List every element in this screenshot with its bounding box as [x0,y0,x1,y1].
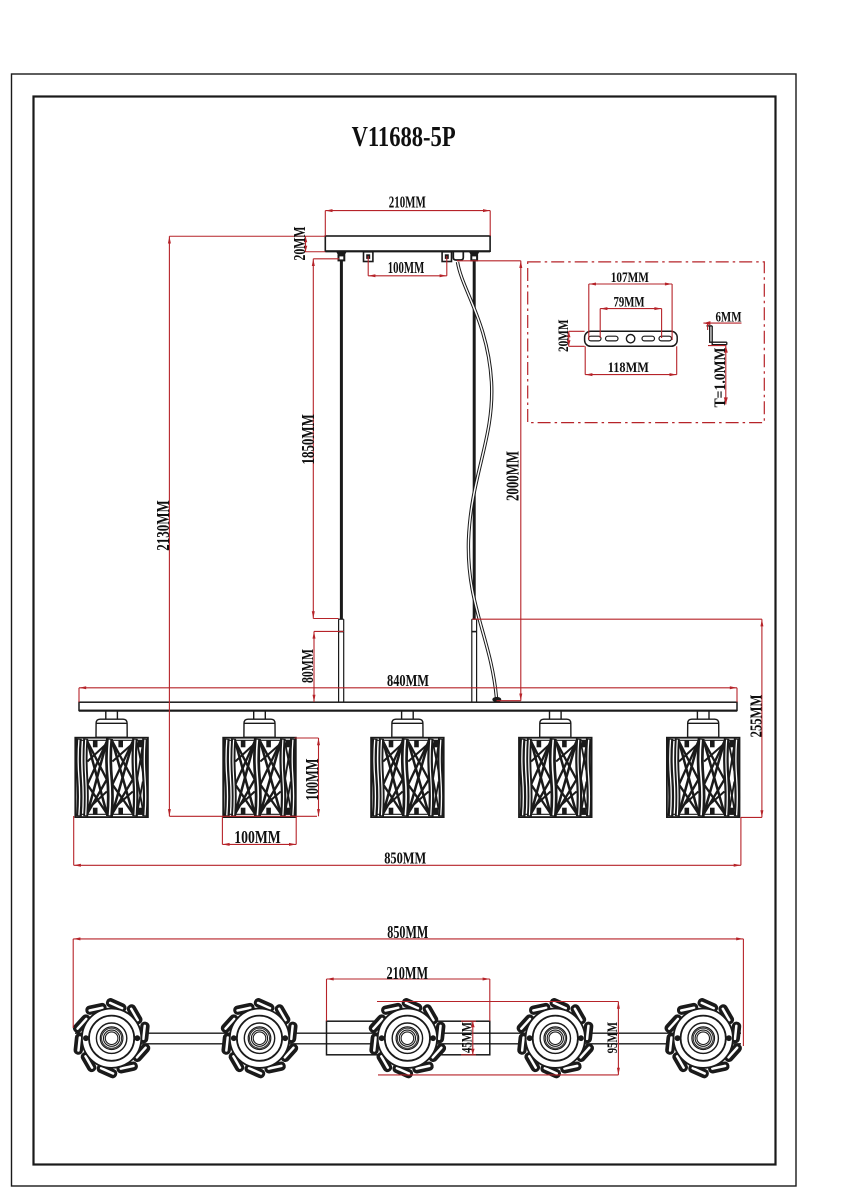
svg-text:100MM: 100MM [234,827,281,847]
svg-text:45MM: 45MM [460,1022,476,1053]
svg-text:95MM: 95MM [605,1022,621,1053]
svg-text:100MM: 100MM [302,758,322,800]
svg-text:6MM: 6MM [715,310,741,326]
svg-text:1850MM: 1850MM [298,414,318,465]
svg-text:20MM: 20MM [290,226,309,260]
svg-text:80MM: 80MM [298,649,317,683]
svg-text:2000MM: 2000MM [503,451,523,501]
svg-text:100MM: 100MM [388,258,425,277]
svg-text:79MM: 79MM [613,295,644,311]
svg-text:2130MM: 2130MM [153,500,173,551]
svg-text:255MM: 255MM [746,695,765,738]
svg-text:210MM: 210MM [386,963,428,983]
svg-text:210MM: 210MM [389,192,426,211]
svg-text:840MM: 840MM [387,671,429,690]
svg-text:118MM: 118MM [608,360,649,376]
svg-text:850MM: 850MM [387,922,428,942]
svg-text:T=1.0MM: T=1.0MM [712,348,729,408]
svg-text:20MM: 20MM [556,319,572,352]
svg-text:107MM: 107MM [611,270,649,286]
svg-text:850MM: 850MM [384,848,426,867]
svg-text:V11688-5P: V11688-5P [352,121,456,153]
